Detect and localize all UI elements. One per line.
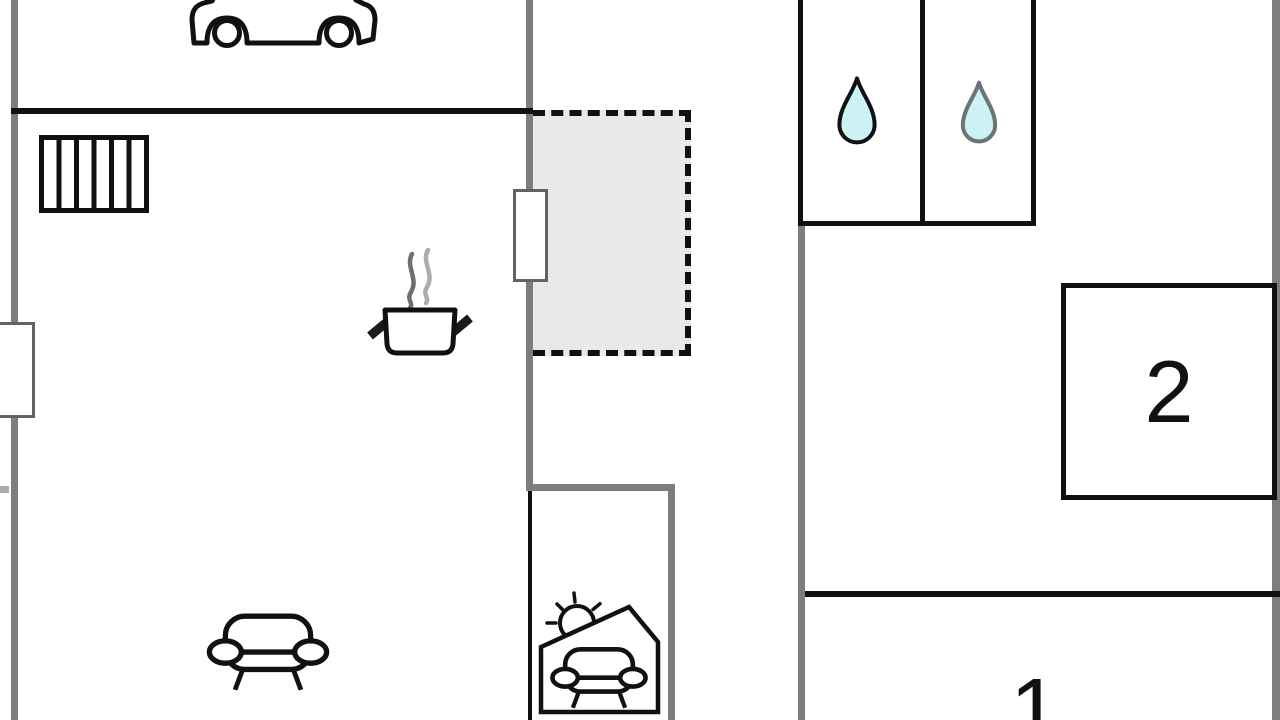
left-wall-stub: [0, 486, 9, 493]
room1-top-wall: [805, 591, 1280, 597]
steam-icon: [425, 250, 429, 303]
bathroom-divider: [920, 0, 925, 221]
sunroom-sofa-icon: [549, 646, 649, 711]
sunroom-right-wall: [668, 484, 675, 720]
window-mid: [513, 189, 548, 282]
sofa-icon: [205, 612, 331, 694]
room2-label: 2: [1145, 348, 1194, 436]
garage-bottom-wall: [11, 108, 533, 114]
room2-box: 2: [1061, 283, 1277, 500]
dashed-area: [533, 110, 691, 356]
room1-label: 1: [980, 666, 1090, 720]
steam-icon: [409, 254, 413, 308]
window-left: [0, 322, 35, 418]
car-icon: [188, 0, 380, 49]
sunroom-top-wall: [526, 484, 675, 491]
water-drop-icon-right: [957, 73, 1001, 154]
sunroom-left-wall: [528, 491, 532, 720]
cooking-pot-icon: [360, 248, 480, 358]
floor-plan: 2 1: [0, 0, 1280, 720]
stairs-icon: [39, 135, 149, 213]
water-drop-icon-left: [833, 68, 881, 156]
